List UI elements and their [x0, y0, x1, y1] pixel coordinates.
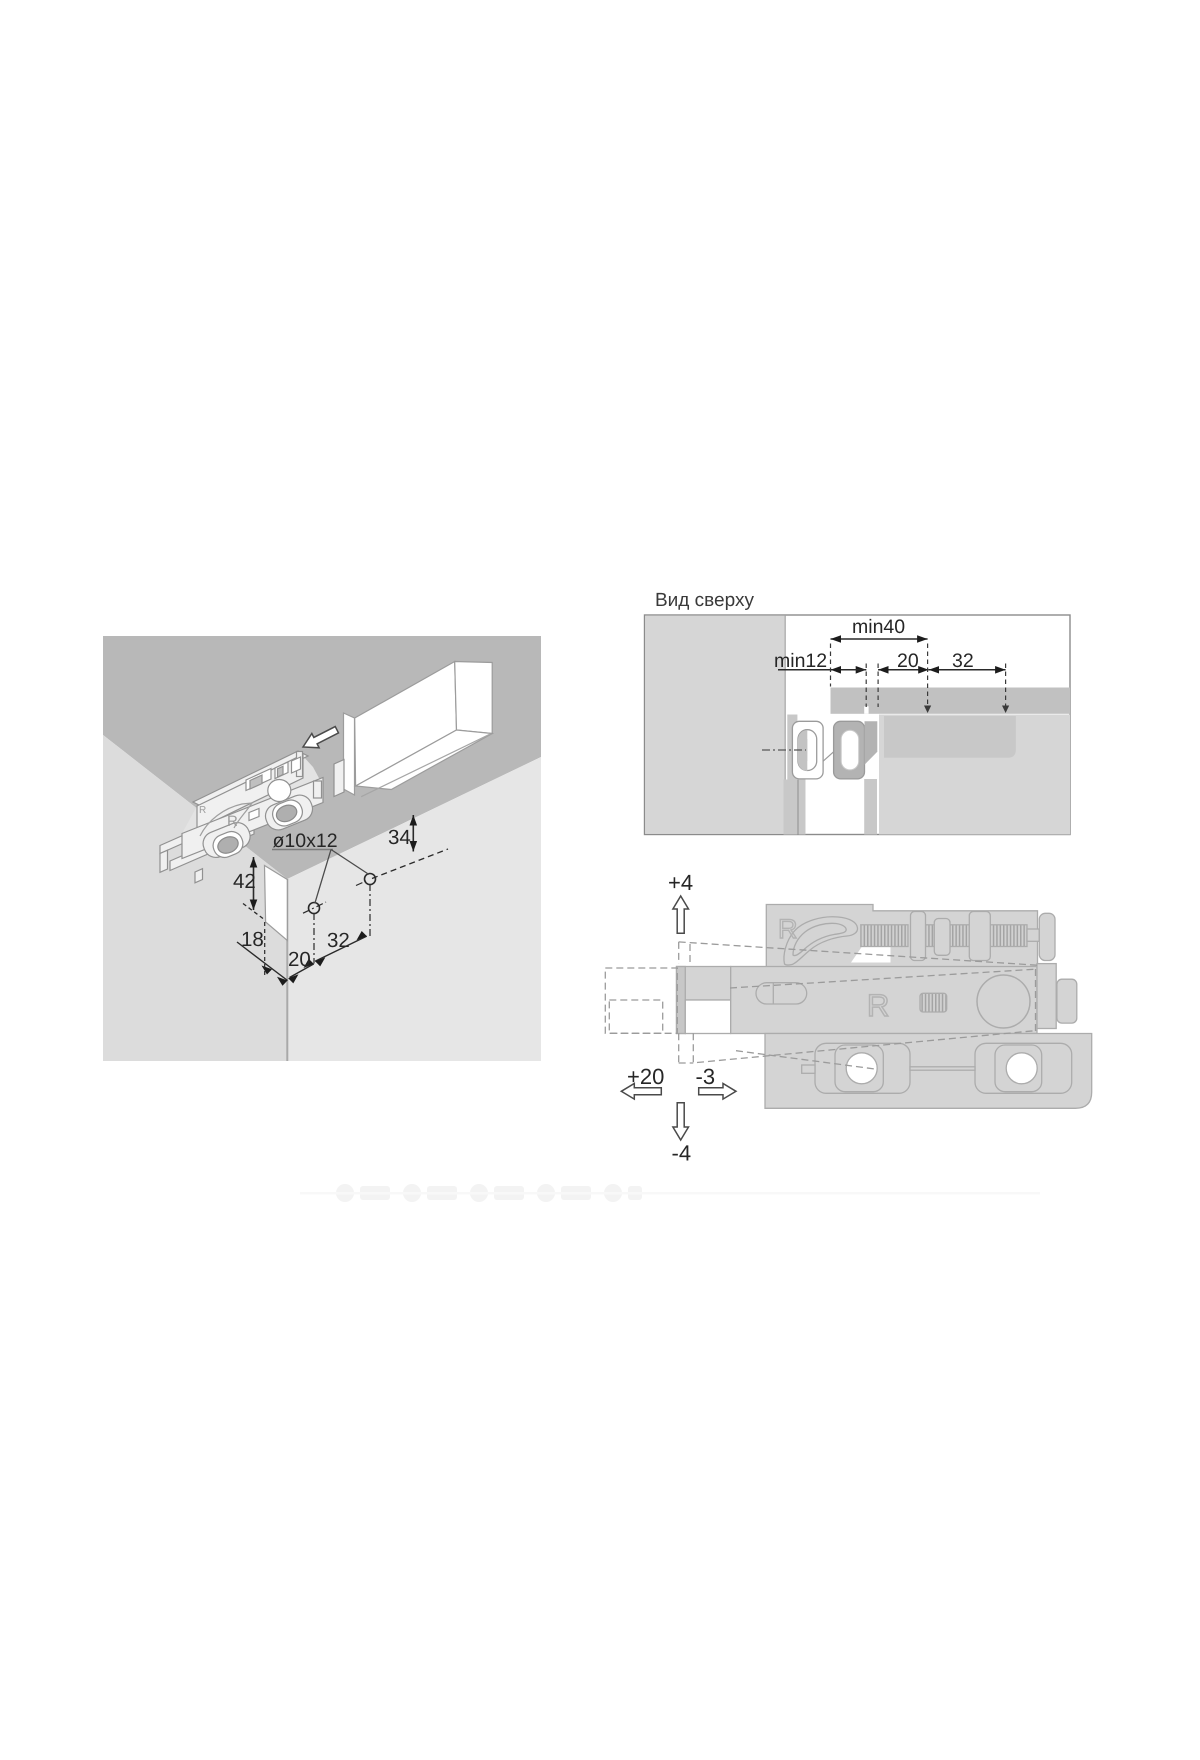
- svg-text:+20: +20: [627, 1064, 664, 1089]
- svg-text:32: 32: [952, 650, 974, 672]
- svg-text:34: 34: [388, 826, 411, 849]
- svg-text:-4: -4: [672, 1141, 692, 1166]
- svg-text:R: R: [867, 988, 889, 1023]
- svg-text:+4: +4: [668, 870, 693, 895]
- svg-text:R: R: [199, 805, 206, 816]
- svg-text:18: 18: [241, 928, 264, 951]
- svg-text:R: R: [227, 813, 238, 830]
- svg-text:min40: min40: [852, 616, 905, 638]
- svg-text:20: 20: [288, 948, 311, 971]
- svg-text:20: 20: [897, 650, 919, 672]
- svg-text:Вид сверху: Вид сверху: [655, 590, 754, 611]
- svg-text:-3: -3: [696, 1064, 716, 1089]
- svg-text:R: R: [778, 914, 798, 944]
- svg-text:ø10x12: ø10x12: [273, 830, 338, 852]
- svg-text:42: 42: [233, 870, 256, 893]
- svg-text:min12: min12: [774, 650, 827, 672]
- svg-text:32: 32: [327, 929, 350, 952]
